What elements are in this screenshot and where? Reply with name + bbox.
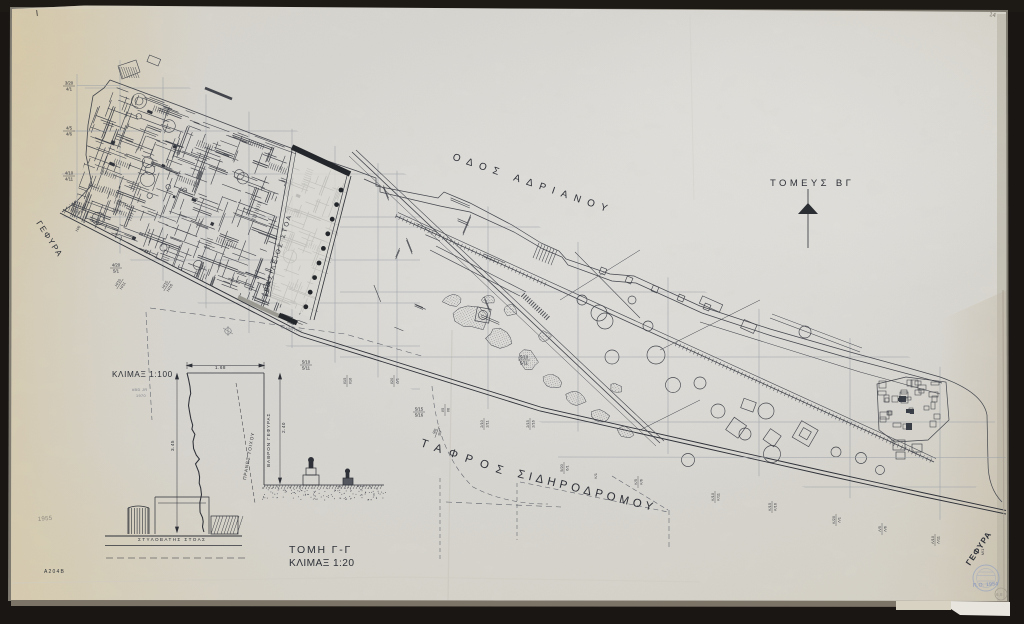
svg-text:#BD JR: #BD JR <box>132 388 147 392</box>
svg-text:Ι/6: Ι/6 <box>445 408 450 412</box>
svg-text:ΚΛΙΜΑΞ 1:20: ΚΛΙΜΑΞ 1:20 <box>289 558 354 569</box>
svg-text:2/11: 2/11 <box>484 420 489 427</box>
svg-text:ΣΤΥΛΟΒΑΤΗΣ ΣΤΟΑΣ: ΣΤΥΛΟΒΑΤΗΣ ΣΤΟΑΣ <box>138 537 206 542</box>
svg-text:Λ/6: Λ/6 <box>882 526 887 532</box>
svg-text:Κ/6: Κ/6 <box>638 479 643 485</box>
svg-text:2/15: 2/15 <box>525 420 530 428</box>
svg-text:5/20: 5/20 <box>559 463 564 471</box>
svg-text:5/10: 5/10 <box>302 360 311 365</box>
svg-text:Λ/10: Λ/10 <box>930 535 935 544</box>
svg-text:3.45: 3.45 <box>170 440 175 451</box>
svg-text:4/5: 4/5 <box>66 126 73 131</box>
svg-text:5/1: 5/1 <box>113 269 120 274</box>
svg-text:Δ/1: Δ/1 <box>394 378 399 384</box>
svg-text:6/1: 6/1 <box>564 465 569 470</box>
svg-text:4/6: 4/6 <box>66 132 73 137</box>
svg-text:ΚΛΙΜΑΞ 1:100: ΚΛΙΜΑΞ 1:100 <box>112 370 173 379</box>
svg-text:Ι/20: Ι/20 <box>389 377 394 384</box>
svg-text:6,8: 6,8 <box>996 592 1003 597</box>
svg-text:5/11: 5/11 <box>520 361 529 366</box>
svg-text:4/11: 4/11 <box>65 177 74 182</box>
svg-text:Κ/16: Κ/16 <box>772 503 777 511</box>
svg-text:Ι/15: Ι/15 <box>342 378 347 385</box>
svg-text:Κ/15: Κ/15 <box>767 503 772 511</box>
svg-text:Λ/5: Λ/5 <box>877 526 882 532</box>
svg-text:2/16: 2/16 <box>530 420 535 428</box>
svg-text:ΒΑΘΡΟΝ ΓΕΦΥΡΑΣ: ΒΑΘΡΟΝ ΓΕΦΥΡΑΣ <box>266 413 271 467</box>
svg-text:Κ/20: Κ/20 <box>831 515 836 524</box>
svg-text:1.68: 1.68 <box>215 365 226 370</box>
svg-text:Κ/11: Κ/11 <box>715 493 720 501</box>
svg-text:1970: 1970 <box>136 394 146 398</box>
svg-text:4/20: 4/20 <box>112 263 121 268</box>
svg-text:Λ/11: Λ/11 <box>935 536 940 544</box>
svg-text:5/11: 5/11 <box>302 366 311 371</box>
svg-text:ΤΟΜΗ Γ-Γ: ΤΟΜΗ Γ-Γ <box>289 544 352 556</box>
svg-text:Α204Β: Α204Β <box>44 569 65 575</box>
svg-text:ΤΟΜΕΥΣ ΒΓ: ΤΟΜΕΥΣ ΒΓ <box>770 178 854 189</box>
svg-text:Κ/10: Κ/10 <box>710 492 715 501</box>
svg-text:2/10: 2/10 <box>479 419 484 427</box>
svg-text:5/15: 5/15 <box>415 407 424 412</box>
svg-text:4/1: 4/1 <box>66 87 73 92</box>
svg-text:3/20: 3/20 <box>65 81 74 86</box>
svg-text:5/16: 5/16 <box>415 413 424 418</box>
svg-text:4/10: 4/10 <box>65 171 74 176</box>
svg-text:5/10: 5/10 <box>520 355 529 360</box>
svg-text:Λ/1: Λ/1 <box>836 517 841 523</box>
svg-text:Ι/16: Ι/16 <box>347 378 352 385</box>
svg-text:2.40: 2.40 <box>281 422 286 433</box>
svg-text:Ι/5: Ι/5 <box>440 408 445 412</box>
svg-text:Κ/1: Κ/1 <box>593 473 598 479</box>
svg-text:Κ/5: Κ/5 <box>633 479 638 485</box>
